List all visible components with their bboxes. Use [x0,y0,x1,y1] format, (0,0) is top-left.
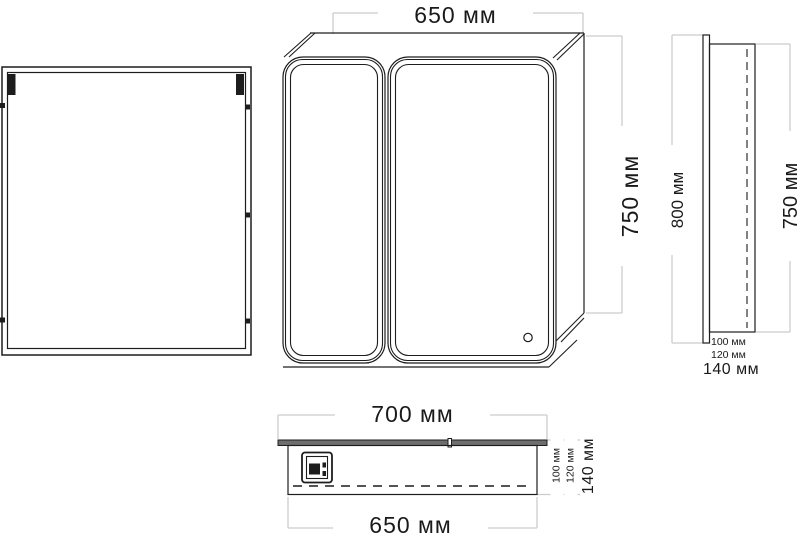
front-width-label: 650 мм [378,3,533,27]
left-door [283,57,385,363]
side-body-height-label: 750 мм [780,131,800,261]
side-depth-mid-label: 120 мм [711,349,746,361]
front-view [283,33,584,367]
line-art [0,0,800,541]
led-strip-left [291,65,378,356]
hinge-mark-left [8,74,16,95]
dimension-lines [278,13,790,528]
mirror-doors-top [278,440,547,446]
mounting-dots [0,103,250,324]
right-door [388,57,556,363]
top-width-body-label: 650 мм [333,513,488,537]
side-view [703,35,755,343]
hinge-mark-right [236,74,244,95]
led-strip-right [396,65,549,356]
top-width-overall-label: 700 мм [335,402,490,426]
top-depth-mid-label: 120 мм [565,420,578,510]
top-depth-total-label: 140 мм [580,416,598,516]
power-socket-icon [302,453,332,483]
technical-drawing-canvas: 650 мм 750 мм 800 мм 750 мм 100 мм 120 м… [0,0,800,541]
front-height-label: 750 мм [618,126,642,266]
back-view [0,67,251,355]
cabinet-body-profile [710,44,756,332]
side-mirror-height-label: 800 мм [668,145,688,255]
top-view [278,439,547,495]
touch-button-icon [524,333,532,341]
side-depth-total-label: 140 мм [703,361,759,379]
top-depth-body-label: 100 мм [551,420,564,510]
side-depth-body-label: 100 мм [711,336,746,348]
mirror-door-profile [703,35,710,343]
